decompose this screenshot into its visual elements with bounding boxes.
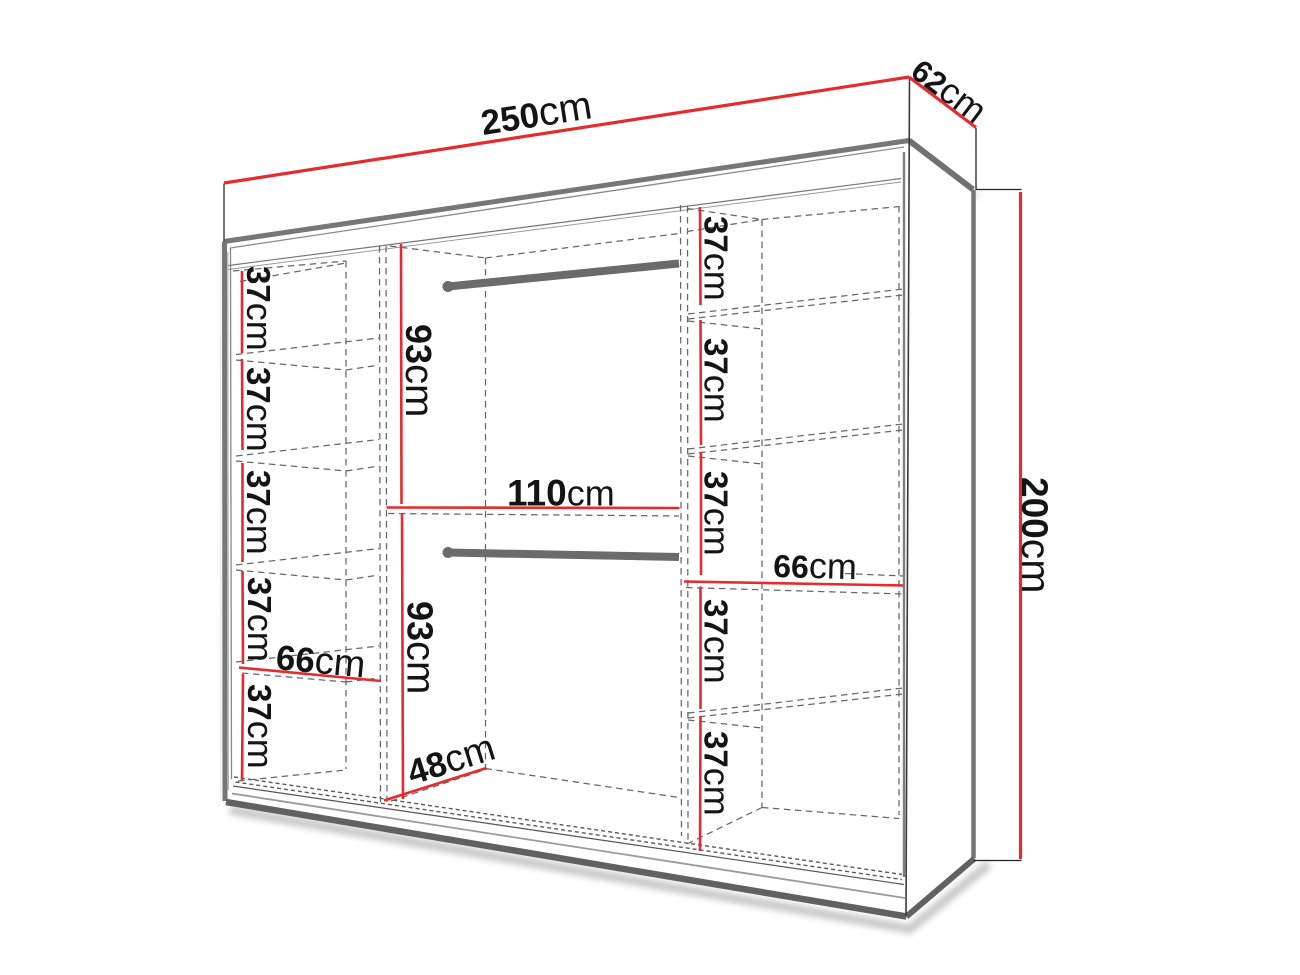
svg-text:37cm: 37cm (240, 684, 281, 769)
svg-text:37cm: 37cm (697, 471, 738, 556)
svg-text:37cm: 37cm (697, 338, 738, 423)
svg-text:93cm: 93cm (399, 601, 443, 694)
svg-text:37cm: 37cm (697, 216, 738, 301)
svg-text:37cm: 37cm (697, 731, 738, 816)
svg-text:37cm: 37cm (239, 266, 280, 351)
svg-text:93cm: 93cm (397, 324, 441, 417)
svg-text:37cm: 37cm (697, 599, 738, 684)
svg-text:37cm: 37cm (240, 577, 281, 662)
svg-text:37cm: 37cm (239, 470, 280, 555)
svg-text:66cm: 66cm (773, 544, 858, 587)
svg-text:200cm: 200cm (1013, 477, 1059, 593)
svg-text:110cm: 110cm (507, 473, 615, 514)
svg-text:37cm: 37cm (239, 367, 280, 452)
